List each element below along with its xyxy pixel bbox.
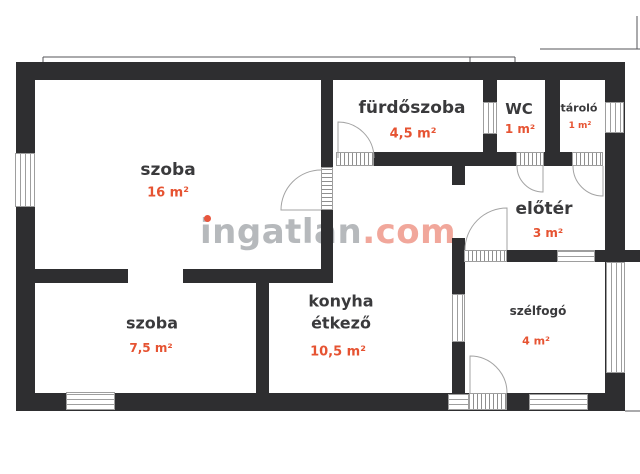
window-porch-bottom-right [529,394,588,410]
wall-wc-storage [545,80,560,152]
room-label-eloter: előtér [515,199,572,219]
window-kitchen-porch [452,294,465,342]
wall-hall-stub [452,152,465,185]
watermark-main: ingatlan [200,212,362,252]
watermark-i-dot-icon [204,215,211,222]
door-sill-wc [516,152,544,166]
wall-rooms-divider-left [16,269,128,283]
door-arc-storage [573,166,603,196]
watermark-com: .com [362,212,456,252]
door-sill-room16 [321,167,333,210]
wall-kitchen-porch-lower [452,342,465,393]
room-label-szoba16: szoba [140,160,195,180]
room-area-furdoszoba: 4,5 m² [390,127,437,142]
floorplan: ingatlan.com [0,0,640,474]
room-label-szoba75: szoba [126,314,178,333]
room-area-szoba16: 16 m² [147,186,189,201]
room-area-szelfogo: 4 m² [522,335,550,348]
room-area-tarolo: 1 m² [569,121,592,131]
room-label-konyha-line2: étkező [311,314,371,333]
window-storage-right [605,102,624,133]
room-area-szoba75: 7,5 m² [129,341,172,355]
door-sill-bathroom [336,152,374,166]
wall-exterior-top [16,62,625,80]
door-sill-kitchen-porch [464,250,507,262]
window-hall-porch [557,250,595,262]
door-sill-storage [572,152,603,166]
room-area-eloter: 3 m² [533,226,563,240]
wall-bathroom-left-upper [321,80,333,168]
door-arc-kitchen-porch [465,208,507,250]
wall-wc-bottom [543,152,573,166]
room-area-konyha: 10,5 m² [310,345,366,360]
door-arc-wc [517,166,543,192]
wall-rooms-divider-right [183,269,333,283]
room-label-tarolo: tároló [561,102,598,115]
door-arc-entrance [470,356,507,393]
wall-room75-kitchen [256,283,269,393]
wall-exterior-left [16,62,35,411]
door-sill-entrance [469,393,507,410]
wall-hall-porch-right [595,250,640,262]
contour-line-top-right [540,16,640,49]
window-bathroom-wc [483,102,497,134]
wall-bathroom-bottom [373,152,516,166]
window-room16-left [15,153,35,207]
room-label-wc: WC [505,100,533,118]
wall-hall-porch-left [507,250,557,262]
door-arc-room16 [281,170,321,210]
room-label-furdoszoba: fürdőszoba [358,98,465,118]
window-porch-right [606,262,625,373]
room-area-wc: 1 m² [505,122,535,136]
window-porch-bottom-left [448,394,469,410]
wall-kitchen-porch-upper [452,238,465,295]
room-label-konyha-line1: konyha [308,292,373,311]
window-room75-bottom [66,392,115,410]
room-label-szelfogo: szélfogó [510,304,567,318]
